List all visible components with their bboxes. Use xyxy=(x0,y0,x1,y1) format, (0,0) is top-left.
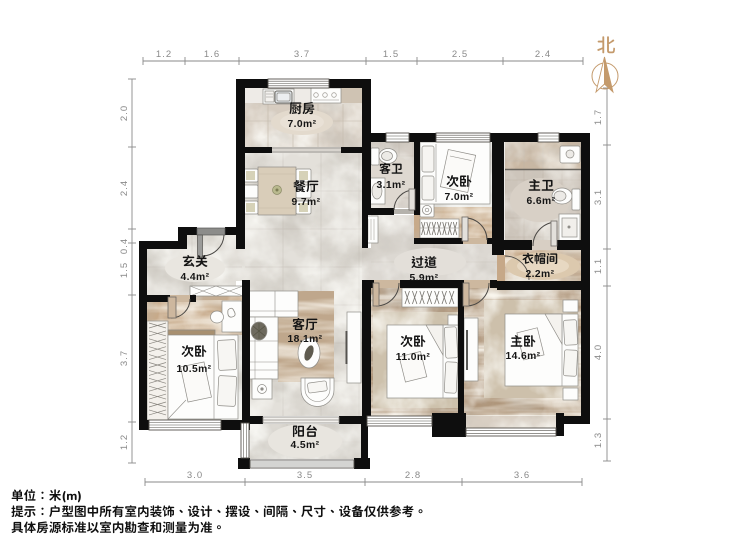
svg-text:3.5: 3.5 xyxy=(297,470,313,481)
svg-text:2.4: 2.4 xyxy=(535,49,551,60)
svg-text:10.5m²: 10.5m² xyxy=(176,364,211,375)
svg-text:1.5: 1.5 xyxy=(383,49,399,60)
svg-text:3.7: 3.7 xyxy=(294,49,310,60)
svg-text:5.9m²: 5.9m² xyxy=(410,273,439,284)
svg-text:11.0m²: 11.0m² xyxy=(396,352,431,363)
svg-text:4.5m²: 4.5m² xyxy=(291,440,320,451)
svg-text:4.0: 4.0 xyxy=(593,344,604,360)
svg-text:2.4: 2.4 xyxy=(119,180,130,196)
svg-text:7.0m²: 7.0m² xyxy=(288,119,317,130)
svg-text:18.1m²: 18.1m² xyxy=(287,334,322,345)
svg-text:3.6: 3.6 xyxy=(514,470,530,481)
svg-text:9.7m²: 9.7m² xyxy=(292,197,321,208)
svg-text:2.2m²: 2.2m² xyxy=(526,269,555,280)
svg-text:1.7: 1.7 xyxy=(593,109,604,125)
svg-text:1.5: 1.5 xyxy=(119,262,130,278)
svg-text:6.6m²: 6.6m² xyxy=(527,196,556,207)
svg-text:2.8: 2.8 xyxy=(405,470,421,481)
svg-text:3.7: 3.7 xyxy=(119,350,130,366)
svg-text:2.0: 2.0 xyxy=(119,105,130,121)
svg-text:4.4m²: 4.4m² xyxy=(181,272,210,283)
svg-text:3.1m²: 3.1m² xyxy=(377,180,406,191)
svg-text:0.4: 0.4 xyxy=(119,238,130,254)
svg-text:1.6: 1.6 xyxy=(204,49,220,60)
svg-text:1.3: 1.3 xyxy=(593,432,604,448)
svg-text:7.0m²: 7.0m² xyxy=(445,192,474,203)
svg-text:1.1: 1.1 xyxy=(593,258,604,274)
svg-text:1.2: 1.2 xyxy=(119,434,130,450)
svg-text:1.2: 1.2 xyxy=(156,49,172,60)
svg-text:2.5: 2.5 xyxy=(452,49,468,60)
svg-text:3.0: 3.0 xyxy=(187,470,203,481)
svg-text:14.6m²: 14.6m² xyxy=(505,351,540,362)
svg-text:3.1: 3.1 xyxy=(593,189,604,205)
